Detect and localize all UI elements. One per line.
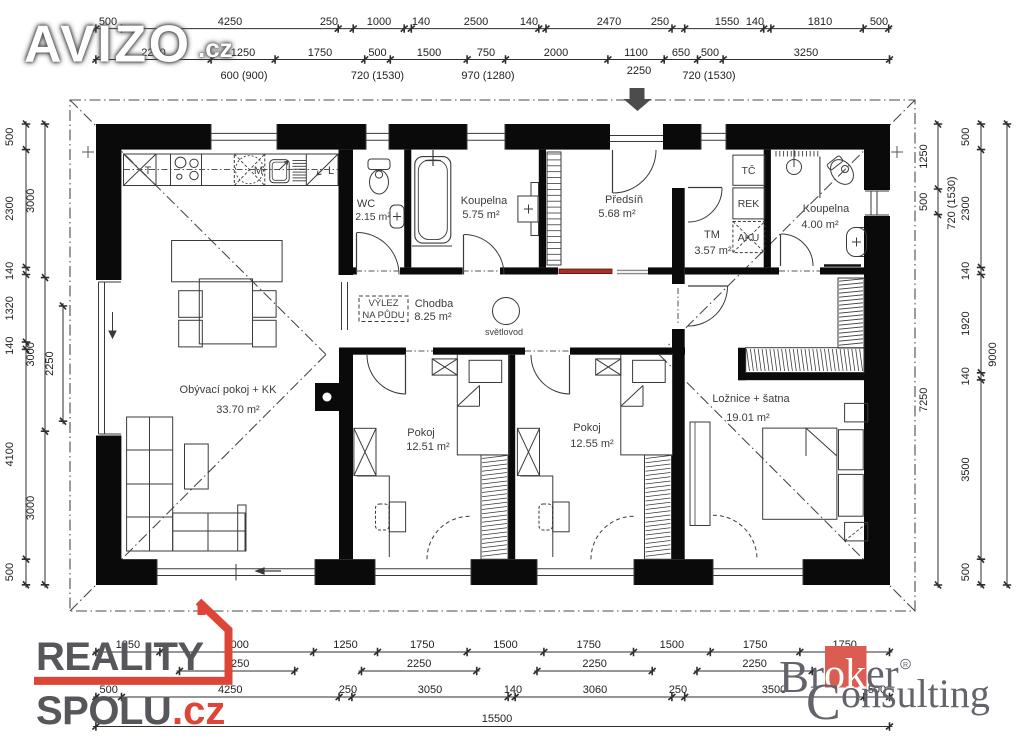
- svg-text:WC: WC: [357, 198, 375, 210]
- svg-text:500: 500: [4, 128, 16, 146]
- svg-text:2250: 2250: [44, 351, 56, 375]
- svg-text:.cz: .cz: [198, 33, 233, 63]
- svg-text:140: 140: [4, 262, 16, 280]
- svg-text:VÝLEZ: VÝLEZ: [368, 298, 398, 309]
- svg-text:Pokoj: Pokoj: [407, 427, 435, 439]
- svg-text:REK: REK: [738, 198, 760, 210]
- svg-text:250: 250: [669, 684, 687, 696]
- svg-text:onsulting: onsulting: [841, 671, 990, 716]
- svg-text:.cz: .cz: [172, 689, 225, 733]
- svg-text:500: 500: [960, 563, 972, 581]
- svg-text:500: 500: [368, 47, 386, 59]
- svg-text:1750: 1750: [410, 639, 434, 651]
- svg-text:Předsíň: Předsíň: [605, 194, 643, 206]
- svg-text:3000: 3000: [25, 189, 37, 213]
- svg-text:B: B: [779, 652, 809, 702]
- svg-text:140: 140: [960, 367, 972, 385]
- svg-text:140: 140: [746, 16, 764, 28]
- svg-text:Obývací pokoj + KK: Obývací pokoj + KK: [180, 384, 278, 396]
- svg-text:3000: 3000: [25, 496, 37, 520]
- svg-text:15500: 15500: [482, 713, 513, 725]
- svg-text:140: 140: [504, 684, 522, 696]
- svg-text:4250: 4250: [218, 16, 242, 28]
- svg-text:1750: 1750: [576, 639, 600, 651]
- svg-text:500: 500: [960, 128, 972, 146]
- svg-text:Pokoj: Pokoj: [573, 422, 601, 434]
- svg-text:1750: 1750: [308, 47, 332, 59]
- svg-text:Ložnice + šatna: Ložnice + šatna: [712, 393, 790, 405]
- svg-text:1500: 1500: [493, 639, 517, 651]
- svg-text:140: 140: [412, 16, 430, 28]
- svg-text:12.51 m²: 12.51 m²: [406, 441, 450, 453]
- svg-text:2000: 2000: [544, 47, 568, 59]
- svg-text:500: 500: [4, 563, 16, 581]
- svg-text:19.01 m²: 19.01 m²: [726, 412, 770, 424]
- svg-text:12.55 m²: 12.55 m²: [570, 438, 614, 450]
- svg-text:7250: 7250: [918, 388, 930, 412]
- svg-text:1500: 1500: [417, 47, 441, 59]
- svg-text:2250: 2250: [407, 658, 431, 670]
- svg-text:Koupelna: Koupelna: [461, 195, 508, 207]
- svg-text:2250: 2250: [627, 65, 651, 77]
- svg-text:3050: 3050: [418, 684, 442, 696]
- svg-text:AKU: AKU: [738, 232, 760, 244]
- svg-text:1920: 1920: [960, 311, 972, 335]
- svg-text:1250: 1250: [333, 639, 357, 651]
- svg-text:Chodba: Chodba: [415, 298, 454, 310]
- svg-text:SPOLU: SPOLU: [36, 689, 171, 733]
- svg-text:720 (1530): 720 (1530): [682, 70, 735, 82]
- svg-text:2250: 2250: [582, 658, 606, 670]
- svg-text:3060: 3060: [583, 684, 607, 696]
- svg-text:3250: 3250: [794, 47, 818, 59]
- svg-text:720 (1530): 720 (1530): [946, 176, 958, 229]
- svg-text:2300: 2300: [4, 196, 16, 220]
- svg-text:2250: 2250: [742, 658, 766, 670]
- svg-text:1320: 1320: [4, 296, 16, 320]
- svg-text:2470: 2470: [597, 16, 621, 28]
- svg-text:9000: 9000: [987, 342, 999, 366]
- svg-text:8.25 m²: 8.25 m²: [414, 311, 452, 323]
- svg-text:M: M: [254, 165, 263, 177]
- svg-text:250: 250: [320, 16, 338, 28]
- svg-text:720 (1530): 720 (1530): [351, 70, 404, 82]
- svg-text:2.15 m²: 2.15 m²: [355, 211, 391, 223]
- svg-text:5.75 m²: 5.75 m²: [462, 209, 500, 221]
- svg-text:AVIZO: AVIZO: [24, 16, 192, 74]
- svg-text:1250: 1250: [231, 47, 255, 59]
- svg-text:140: 140: [520, 16, 538, 28]
- svg-text:5.68 m²: 5.68 m²: [598, 208, 636, 220]
- svg-text:R: R: [903, 662, 908, 669]
- svg-text:2500: 2500: [464, 16, 488, 28]
- svg-text:3000: 3000: [25, 342, 37, 366]
- svg-text:140: 140: [4, 337, 16, 355]
- svg-text:500: 500: [870, 16, 888, 28]
- svg-text:Koupelna: Koupelna: [803, 203, 850, 215]
- svg-text:250: 250: [651, 16, 669, 28]
- svg-text:3500: 3500: [960, 457, 972, 481]
- svg-text:TM: TM: [704, 229, 720, 241]
- svg-text:500: 500: [918, 193, 930, 211]
- svg-text:L: L: [328, 165, 334, 177]
- svg-text:140: 140: [960, 262, 972, 280]
- svg-text:2300: 2300: [960, 196, 972, 220]
- svg-text:3.57 m²: 3.57 m²: [694, 245, 732, 257]
- svg-text:4.00 m²: 4.00 m²: [801, 219, 839, 231]
- svg-text:600 (900): 600 (900): [220, 70, 267, 82]
- svg-text:1100: 1100: [624, 47, 648, 59]
- svg-text:500: 500: [701, 47, 719, 59]
- svg-text:1810: 1810: [808, 16, 832, 28]
- svg-text:NA PŮDU: NA PŮDU: [362, 309, 404, 321]
- svg-text:250: 250: [339, 684, 357, 696]
- svg-text:970 (1280): 970 (1280): [461, 70, 514, 82]
- svg-text:světlovod: světlovod: [485, 327, 523, 337]
- svg-text:REALITY: REALITY: [36, 635, 204, 679]
- svg-text:1550: 1550: [715, 16, 739, 28]
- svg-text:1750: 1750: [743, 639, 767, 651]
- svg-text:33.70 m²: 33.70 m²: [216, 404, 260, 416]
- svg-text:650: 650: [672, 47, 690, 59]
- svg-text:1500: 1500: [660, 639, 684, 651]
- svg-text:C: C: [806, 674, 841, 731]
- svg-text:4100: 4100: [4, 442, 16, 466]
- svg-text:T: T: [145, 165, 152, 177]
- svg-text:TČ: TČ: [742, 164, 756, 177]
- svg-text:1000: 1000: [367, 16, 391, 28]
- svg-text:1250: 1250: [918, 144, 930, 168]
- svg-text:750: 750: [477, 47, 495, 59]
